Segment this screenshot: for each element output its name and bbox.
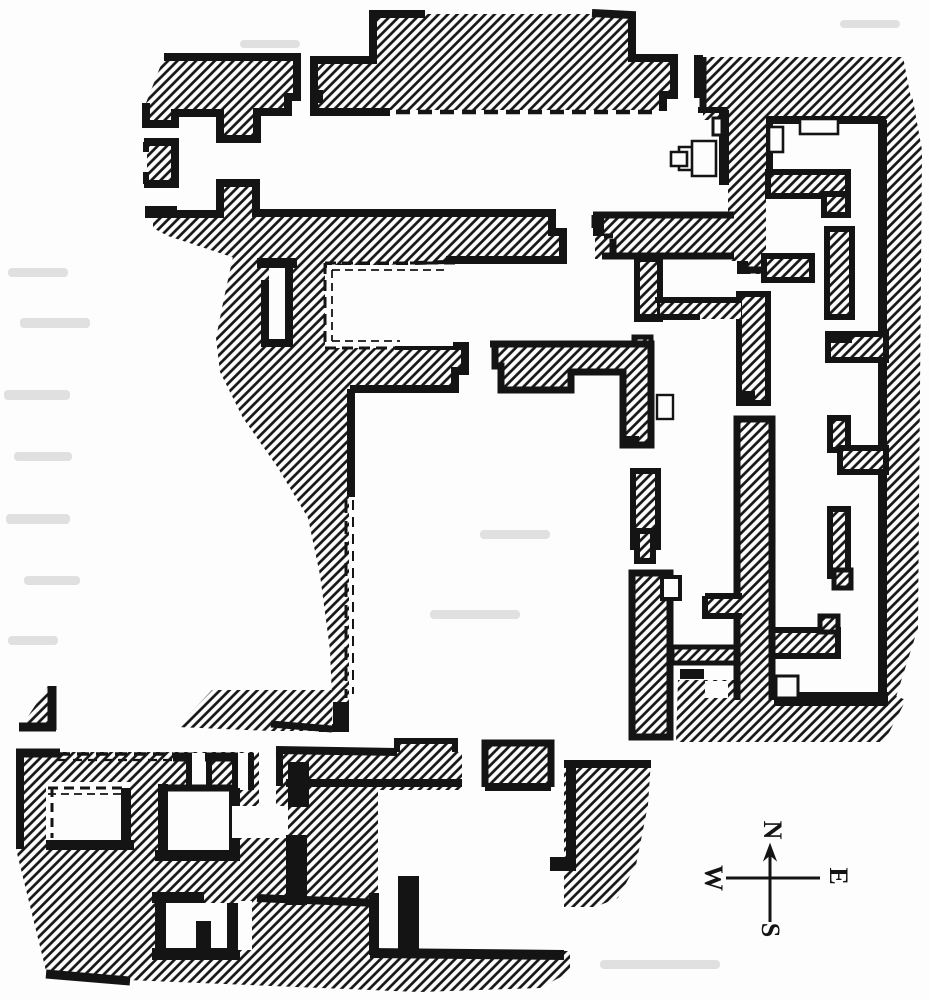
svg-text:S: S <box>756 923 785 937</box>
svg-text:N: N <box>758 821 787 840</box>
svg-text:W: W <box>699 865 728 891</box>
svg-text:E: E <box>824 867 853 884</box>
